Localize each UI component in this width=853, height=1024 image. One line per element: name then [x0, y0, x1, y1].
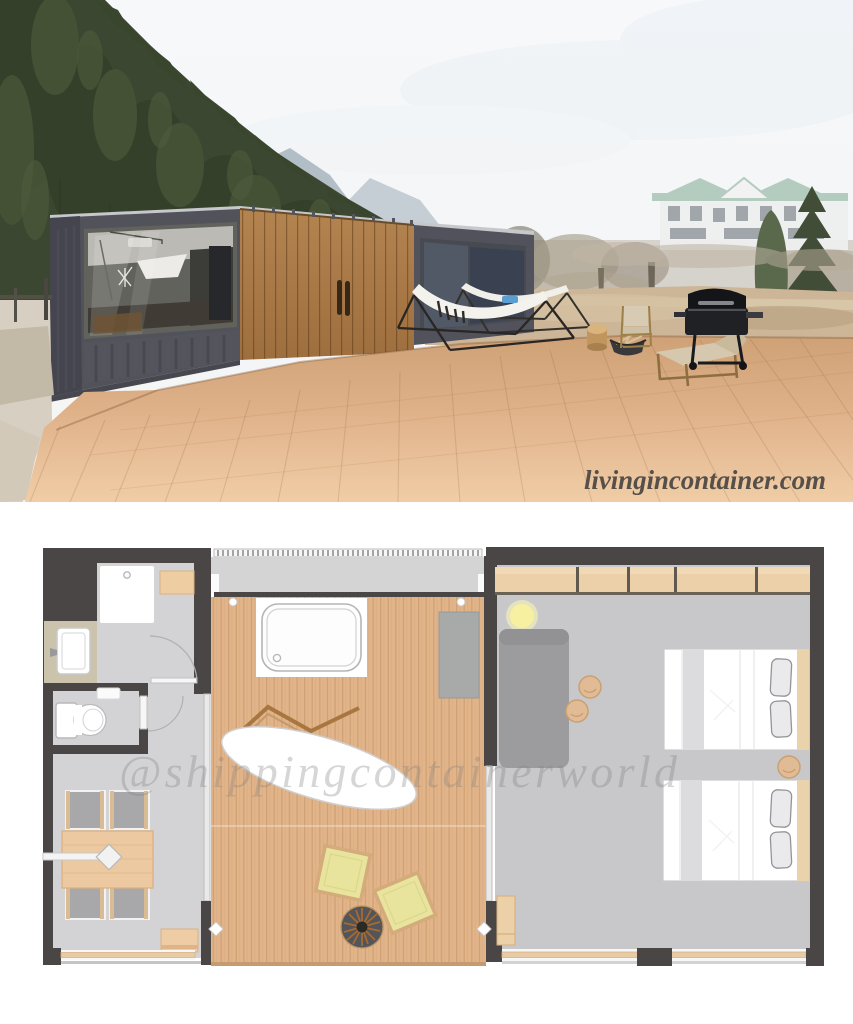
svg-text:livingincontainer.com: livingincontainer.com [584, 465, 826, 495]
